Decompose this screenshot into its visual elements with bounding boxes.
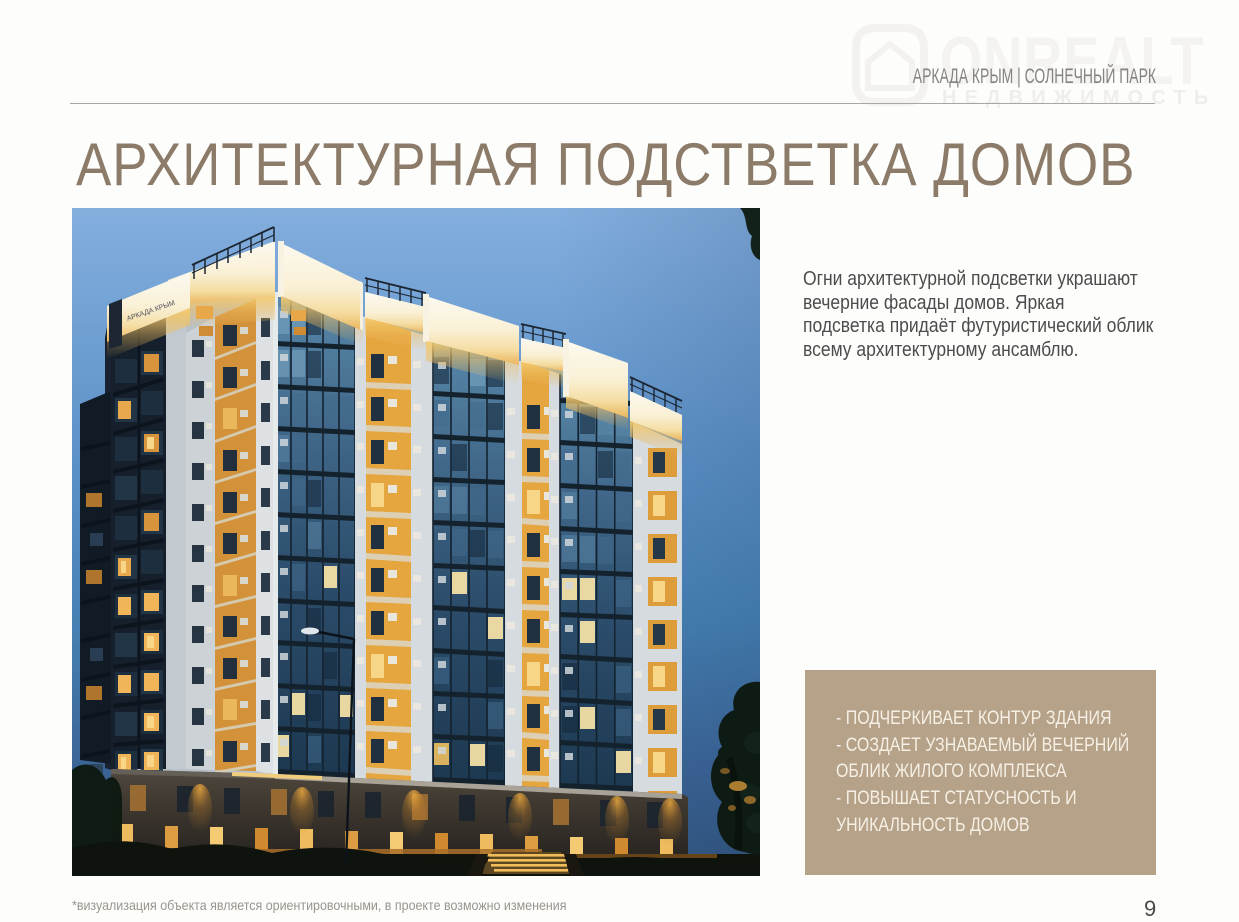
svg-text:НЕДВИЖИМОСТЬ: НЕДВИЖИМОСТЬ (942, 87, 1216, 109)
